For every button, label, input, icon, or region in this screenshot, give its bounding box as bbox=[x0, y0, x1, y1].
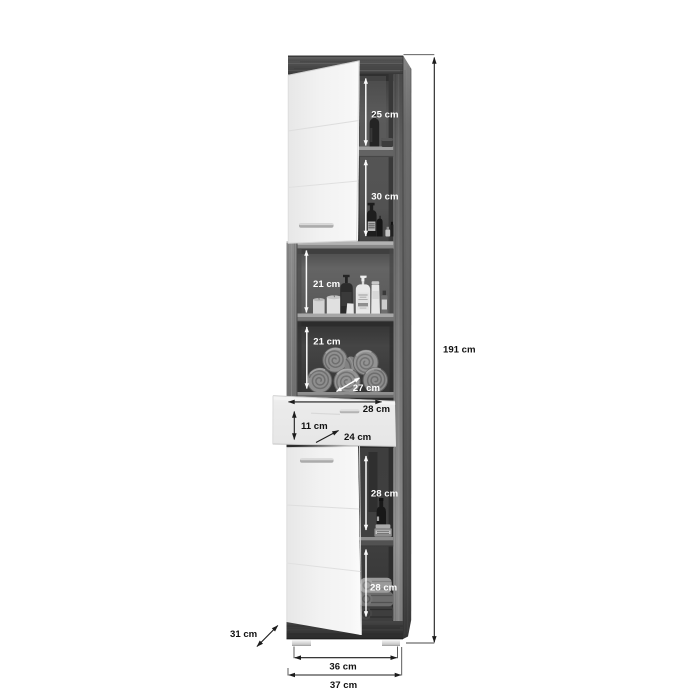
svg-text:21 cm: 21 cm bbox=[313, 337, 340, 348]
svg-text:21 cm: 21 cm bbox=[313, 279, 340, 290]
svg-text:31 cm: 31 cm bbox=[230, 629, 257, 640]
svg-text:28 cm: 28 cm bbox=[371, 489, 398, 500]
svg-text:28 cm: 28 cm bbox=[363, 404, 390, 415]
svg-text:191 cm: 191 cm bbox=[443, 345, 476, 356]
svg-text:30 cm: 30 cm bbox=[371, 192, 398, 203]
svg-text:25 cm: 25 cm bbox=[371, 110, 398, 121]
svg-text:28 cm: 28 cm bbox=[370, 582, 397, 593]
svg-text:24 cm: 24 cm bbox=[344, 432, 371, 443]
svg-text:36 cm: 36 cm bbox=[329, 661, 356, 672]
svg-text:37 cm: 37 cm bbox=[330, 680, 357, 691]
svg-text:11 cm: 11 cm bbox=[301, 421, 328, 432]
